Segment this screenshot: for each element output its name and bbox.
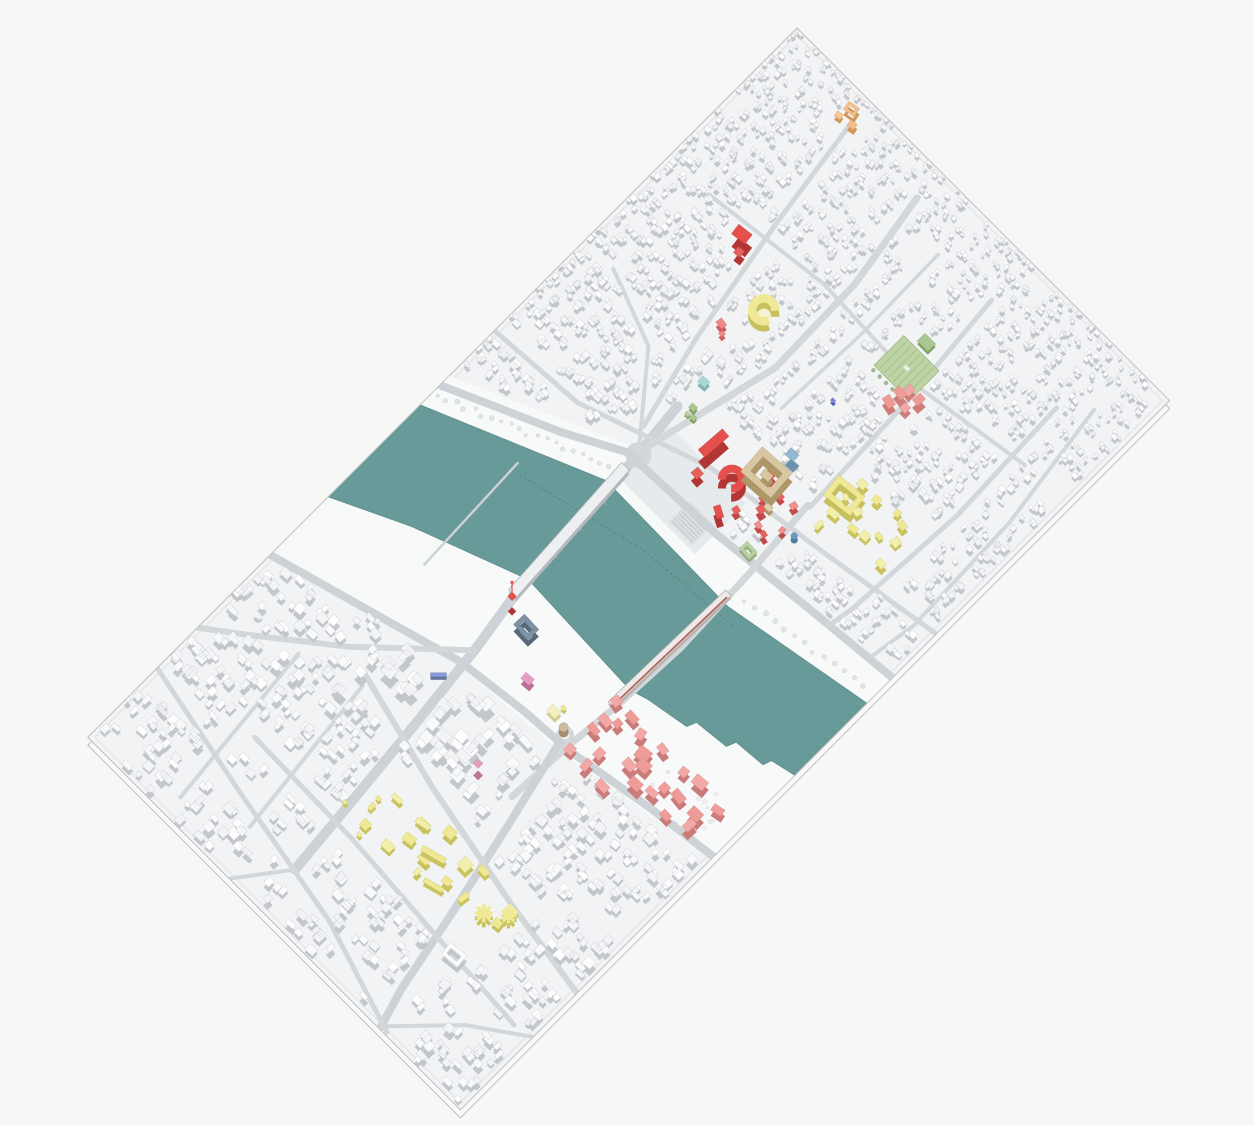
landmark-blue-dome (791, 533, 798, 544)
map-svg (0, 0, 1254, 1125)
city-map (0, 0, 1254, 1125)
landmark-blue-strip-building (431, 673, 447, 680)
landmark-tan-round-monument (559, 723, 569, 738)
